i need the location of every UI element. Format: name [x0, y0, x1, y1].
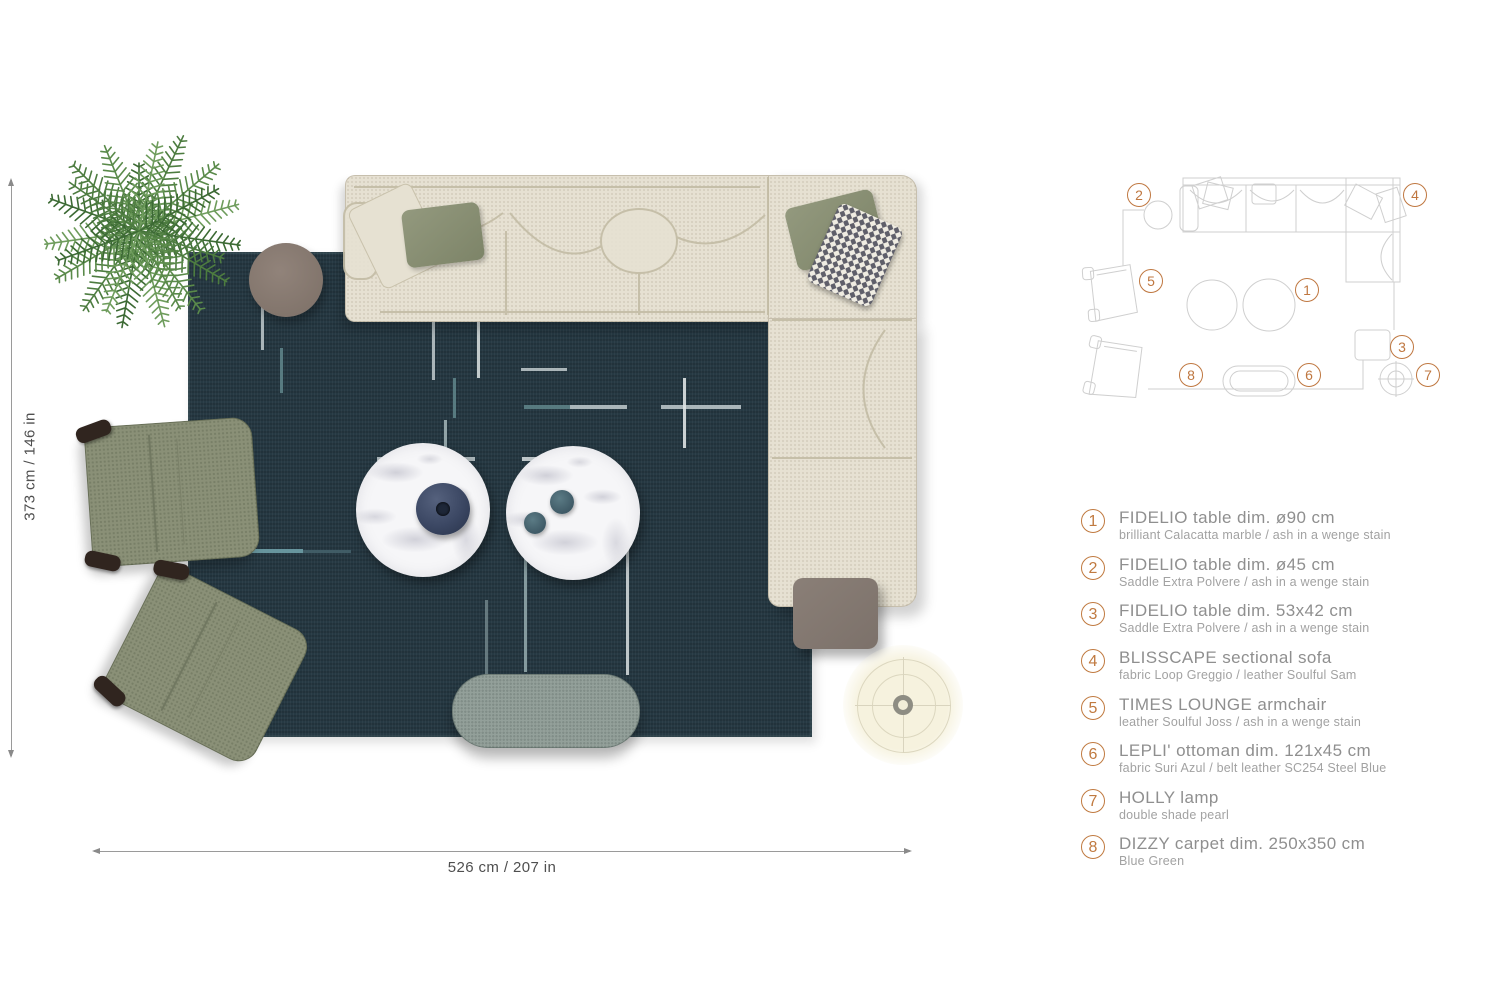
legend-subtitle: Saddle Extra Polvere / ash in a wenge st… — [1119, 621, 1369, 636]
schematic-side-table-square — [1355, 330, 1390, 360]
legend-item: 6 LEPLI' ottoman dim. 121x45 cm fabric S… — [1081, 741, 1386, 776]
legend-number: 6 — [1081, 742, 1105, 766]
legend-item: 5 TIMES LOUNGE armchair leather Soulful … — [1081, 695, 1361, 730]
schematic-armchair — [1080, 335, 1148, 405]
legend-item: 4 BLISSCAPE sectional sofa fabric Loop G… — [1081, 648, 1357, 683]
navy-bowl — [416, 483, 470, 535]
legend-title: BLISSCAPE sectional sofa — [1119, 648, 1357, 668]
vertical-dimension-arrow-top — [8, 178, 14, 186]
schematic-ottoman — [1223, 366, 1295, 396]
schematic-marker-1: 1 — [1295, 278, 1319, 302]
schematic-marker-7: 7 — [1416, 363, 1440, 387]
armchair-top — [83, 416, 260, 567]
vertical-dimension-label: 373 cm / 146 in — [22, 387, 39, 547]
schematic-lamp — [1378, 361, 1414, 397]
horizontal-dimension-line — [94, 851, 910, 852]
schematic-table-large — [1187, 280, 1237, 330]
legend-title: FIDELIO table dim. ø90 cm — [1119, 508, 1391, 528]
legend-item: 7 HOLLY lamp double shade pearl — [1081, 788, 1229, 823]
teal-bowl — [550, 490, 574, 514]
legend-item: 2 FIDELIO table dim. ø45 cm Saddle Extra… — [1081, 555, 1369, 590]
sofa-pillow-olive-left — [401, 201, 485, 268]
legend-item: 1 FIDELIO table dim. ø90 cm brilliant Ca… — [1081, 508, 1391, 543]
coffee-table-marble-right — [506, 446, 640, 580]
schematic-sofa-outline — [1180, 177, 1406, 282]
schematic-floorplan: 12345678 — [1080, 168, 1450, 413]
legend-title: FIDELIO table dim. 53x42 cm — [1119, 601, 1369, 621]
legend-title: TIMES LOUNGE armchair — [1119, 695, 1361, 715]
legend-number: 1 — [1081, 509, 1105, 533]
legend-title: FIDELIO table dim. ø45 cm — [1119, 555, 1369, 575]
legend-subtitle: double shade pearl — [1119, 808, 1229, 823]
legend-number: 8 — [1081, 835, 1105, 859]
vertical-dimension-arrow-bottom — [8, 750, 14, 758]
legend-title: HOLLY lamp — [1119, 788, 1229, 808]
legend-number: 2 — [1081, 556, 1105, 580]
horizontal-dimension-arrow-left — [92, 848, 100, 854]
legend-subtitle: Saddle Extra Polvere / ash in a wenge st… — [1119, 575, 1369, 590]
legend-title: LEPLI' ottoman dim. 121x45 cm — [1119, 741, 1386, 761]
side-table-round — [249, 243, 323, 317]
legend-number: 7 — [1081, 789, 1105, 813]
schematic-marker-3: 3 — [1390, 335, 1414, 359]
floor-lamp — [843, 645, 963, 765]
schematic-table-large — [1243, 279, 1295, 331]
side-table-square — [793, 578, 878, 649]
vertical-dimension-line — [11, 180, 12, 756]
schematic-marker-2: 2 — [1127, 183, 1151, 207]
legend-subtitle: fabric Suri Azul / belt leather SC254 St… — [1119, 761, 1386, 776]
legend-title: DIZZY carpet dim. 250x350 cm — [1119, 834, 1365, 854]
schematic-armchair — [1082, 264, 1138, 321]
schematic-marker-6: 6 — [1297, 363, 1321, 387]
floorplan-page: 373 cm / 146 in 526 cm / 207 in — [0, 0, 1500, 995]
coffee-table-marble-left — [356, 443, 490, 577]
legend-number: 5 — [1081, 696, 1105, 720]
legend-item: 3 FIDELIO table dim. 53x42 cm Saddle Ext… — [1081, 601, 1369, 636]
lamp-center — [893, 695, 913, 715]
schematic-marker-4: 4 — [1403, 183, 1427, 207]
legend-subtitle: brilliant Calacatta marble / ash in a we… — [1119, 528, 1391, 543]
legend-subtitle: leather Soulful Joss / ash in a wenge st… — [1119, 715, 1361, 730]
legend-subtitle: fabric Loop Greggio / leather Soulful Sa… — [1119, 668, 1357, 683]
legend-item: 8 DIZZY carpet dim. 250x350 cm Blue Gree… — [1081, 834, 1365, 869]
schematic-marker-8: 8 — [1179, 363, 1203, 387]
schematic-marker-5: 5 — [1139, 269, 1163, 293]
schematic-side-table-round — [1144, 201, 1172, 229]
schematic-room-boundary — [1123, 210, 1394, 389]
legend-number: 4 — [1081, 649, 1105, 673]
ottoman — [452, 674, 640, 748]
legend-number: 3 — [1081, 602, 1105, 626]
horizontal-dimension-label: 526 cm / 207 in — [402, 859, 602, 876]
horizontal-dimension-arrow-right — [904, 848, 912, 854]
armchair-body — [83, 416, 260, 567]
legend-subtitle: Blue Green — [1119, 854, 1365, 869]
teal-bowl — [524, 512, 546, 534]
palm-plant — [25, 115, 255, 345]
